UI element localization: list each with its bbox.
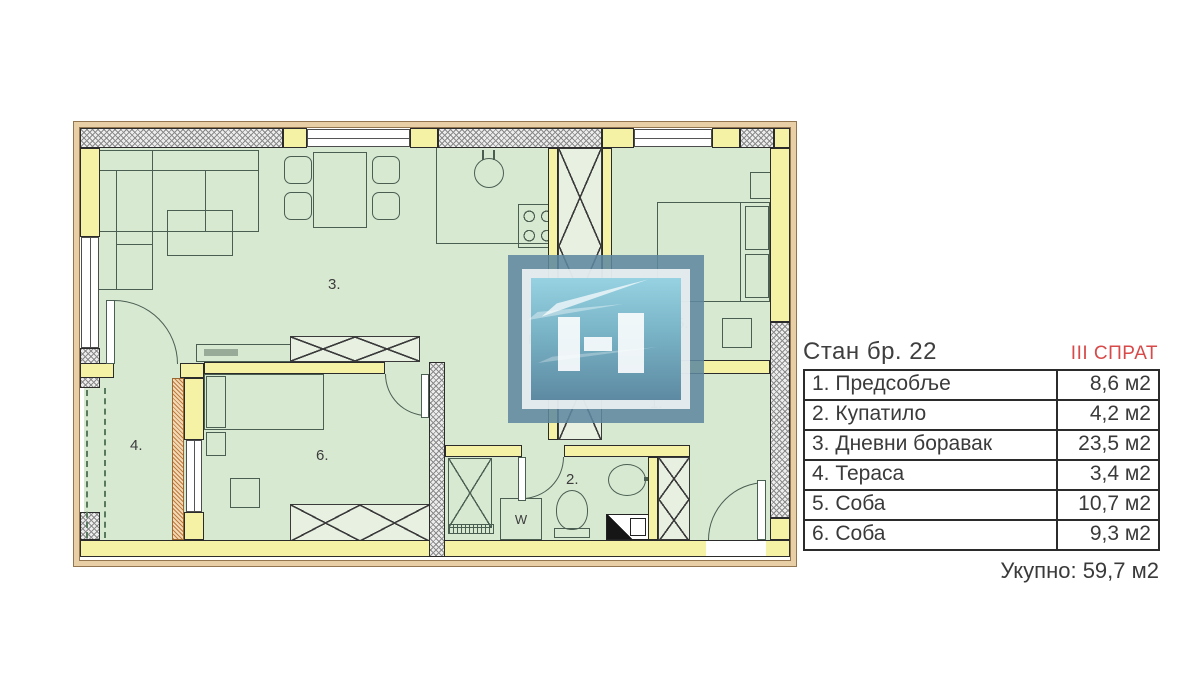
- sink-tap: [482, 150, 484, 160]
- wall: [410, 128, 438, 148]
- room-name: 3. Дневни боравак: [804, 430, 1057, 460]
- wall: [438, 128, 602, 148]
- window: [81, 237, 99, 348]
- wall: [770, 518, 790, 540]
- room-area: 10,7 м2: [1057, 490, 1159, 520]
- chair: [372, 192, 400, 220]
- room-label-terrace: 4.: [130, 438, 143, 453]
- room-name: 1. Предсобље: [804, 370, 1057, 400]
- wall: [602, 128, 634, 148]
- apartment-title: Стан бр. 22: [803, 338, 937, 366]
- floor-label: III СПРАТ: [1071, 343, 1158, 365]
- room-name: 2. Купатило: [804, 400, 1057, 430]
- side-table: [722, 318, 752, 348]
- room6-door-leaf: [421, 374, 429, 418]
- terrace-railing: [104, 388, 106, 538]
- room-area: 23,5 м2: [1057, 430, 1159, 460]
- wall: [445, 445, 522, 457]
- logo-mark: [584, 337, 612, 351]
- wall: [184, 378, 204, 440]
- room-area: 3,4 м2: [1057, 460, 1159, 490]
- kitchen-sink: [474, 158, 504, 188]
- ventilation-shaft: [658, 457, 690, 540]
- terrace-door-leaf: [106, 300, 115, 364]
- terrace-edge: [86, 390, 88, 538]
- washing-machine-label: W: [515, 512, 527, 527]
- pillow: [745, 206, 769, 250]
- tv-unit: [204, 349, 238, 356]
- toilet: [556, 490, 588, 530]
- wall: [648, 457, 658, 540]
- dining-table: [313, 152, 367, 228]
- sofa: [96, 150, 153, 290]
- wall-column: [429, 362, 445, 557]
- wall: [712, 128, 740, 148]
- wall: [774, 128, 790, 148]
- table-row: 4. Тераса 3,4 м2: [804, 460, 1159, 490]
- wall: [204, 362, 385, 374]
- bathroom-sink: [608, 464, 646, 496]
- table-row: 2. Купатило 4,2 м2: [804, 400, 1159, 430]
- wall: [564, 445, 690, 457]
- table-row: 6. Соба 9,3 м2: [804, 520, 1159, 550]
- nightstand: [206, 432, 226, 456]
- floor-plan-page: W: [0, 0, 1200, 675]
- table-row: 1. Предсобље 8,6 м2: [804, 370, 1159, 400]
- entrance-door-leaf: [757, 480, 766, 540]
- apartment-info-panel: Стан бр. 22 III СПРАТ 1. Предсобље 8,6 м…: [803, 338, 1160, 584]
- room-label-bathroom: 2.: [566, 472, 579, 487]
- pillow: [745, 254, 769, 298]
- room-name: 5. Соба: [804, 490, 1057, 520]
- bathroom-door-leaf: [518, 457, 526, 501]
- table-row: 3. Дневни боравак 23,5 м2: [804, 430, 1159, 460]
- wall: [184, 512, 204, 540]
- window: [307, 129, 410, 147]
- sink-tap: [493, 150, 495, 160]
- wardrobe: [290, 336, 420, 362]
- sofa-seam: [116, 170, 117, 290]
- shower: [448, 458, 492, 528]
- room-name: 4. Тераса: [804, 460, 1057, 490]
- sofa-seam: [116, 244, 153, 245]
- entrance-opening: [706, 541, 766, 556]
- pillow: [206, 376, 226, 428]
- toilet-base: [554, 528, 590, 538]
- cabinet-door: [630, 518, 646, 536]
- chair: [372, 156, 400, 184]
- room-area: 4,2 м2: [1057, 400, 1159, 430]
- wall: [80, 148, 100, 237]
- logo-mark: [558, 317, 580, 371]
- wall: [80, 128, 283, 148]
- terrace-window: [186, 440, 202, 512]
- wall: [740, 128, 774, 148]
- wall: [770, 322, 790, 518]
- shower-grate: [448, 524, 494, 534]
- logo-mark: [618, 313, 644, 373]
- wall: [80, 363, 114, 378]
- window: [634, 129, 712, 147]
- room-area: 9,3 м2: [1057, 520, 1159, 550]
- side-table: [230, 478, 260, 508]
- sofa-seam: [96, 170, 259, 171]
- room-name: 6. Соба: [804, 520, 1057, 550]
- wall: [283, 128, 307, 148]
- wall: [770, 148, 790, 322]
- wall: [180, 363, 204, 378]
- coffee-table: [167, 210, 233, 256]
- wardrobe: [290, 504, 430, 542]
- chair: [284, 192, 312, 220]
- room-label-living: 3.: [328, 277, 341, 292]
- washing-machine: W: [500, 498, 542, 540]
- wall: [80, 512, 100, 540]
- terrace-parapet: [172, 378, 184, 540]
- table-row: 5. Соба 10,7 м2: [804, 490, 1159, 520]
- bed-line: [740, 202, 741, 302]
- builder-logo-watermark: [508, 255, 704, 423]
- total-area: Укупно: 59,7 м2: [803, 558, 1160, 584]
- room-area-table: 1. Предсобље 8,6 м2 2. Купатило 4,2 м2 3…: [803, 369, 1160, 551]
- floor-plan: W: [0, 0, 800, 675]
- chair: [284, 156, 312, 184]
- room-label-bedroom6: 6.: [316, 448, 329, 463]
- room-area: 8,6 м2: [1057, 370, 1159, 400]
